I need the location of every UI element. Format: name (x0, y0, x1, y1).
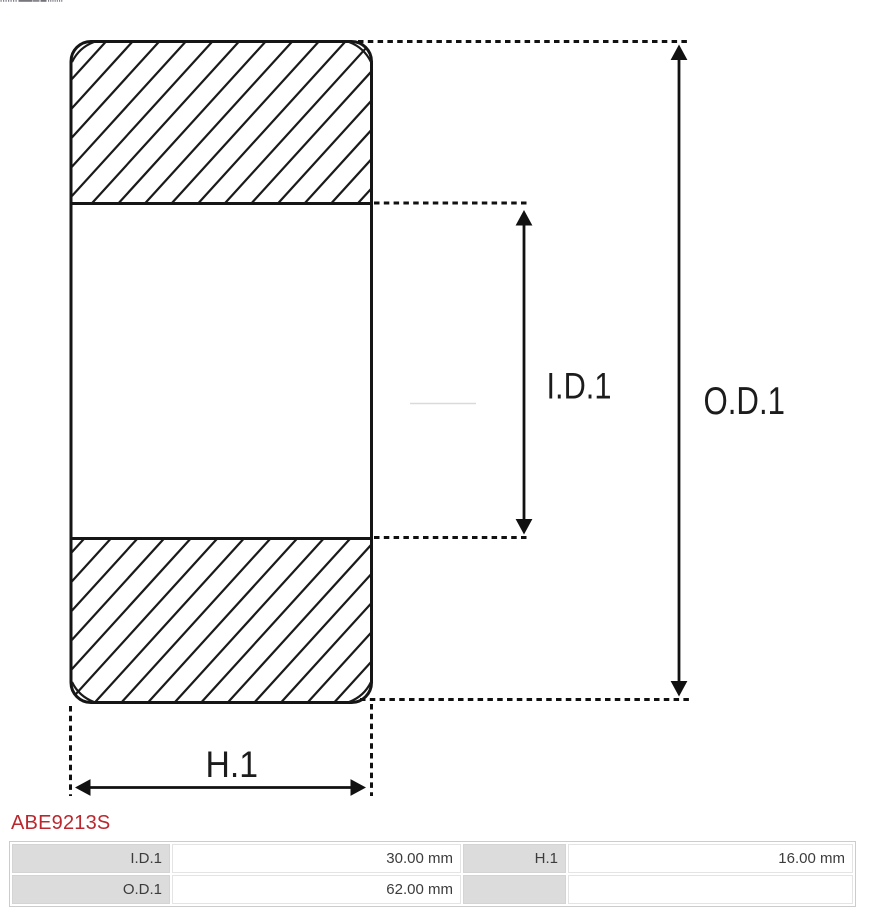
svg-text:I.D.1: I.D.1 (547, 366, 612, 408)
svg-text:H.1: H.1 (206, 743, 259, 785)
svg-text:O.D.1: O.D.1 (704, 380, 785, 423)
